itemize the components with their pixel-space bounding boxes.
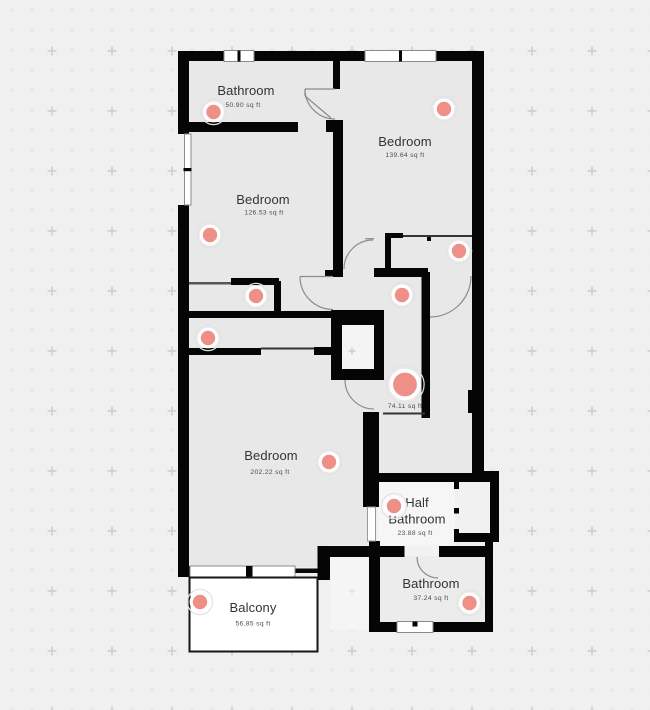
svg-text:Bedroom: Bedroom [236,192,289,207]
svg-text:37.24 sq ft: 37.24 sq ft [413,595,448,602]
svg-text:23.88 sq ft: 23.88 sq ft [397,530,432,537]
svg-text:Balcony: Balcony [230,600,277,615]
svg-text:Bathroom: Bathroom [402,576,459,591]
svg-text:Bedroom: Bedroom [378,134,431,149]
svg-text:Half: Half [405,495,429,510]
svg-text:Bathroom: Bathroom [217,83,274,98]
svg-text:Bedroom: Bedroom [244,448,297,463]
svg-text:126.53 sq ft: 126.53 sq ft [244,210,283,217]
svg-text:56.85 sq ft: 56.85 sq ft [235,621,270,628]
svg-text:139.64 sq ft: 139.64 sq ft [385,152,424,159]
svg-text:50.90 sq ft: 50.90 sq ft [225,102,260,109]
svg-text:202.22 sq ft: 202.22 sq ft [250,469,289,476]
